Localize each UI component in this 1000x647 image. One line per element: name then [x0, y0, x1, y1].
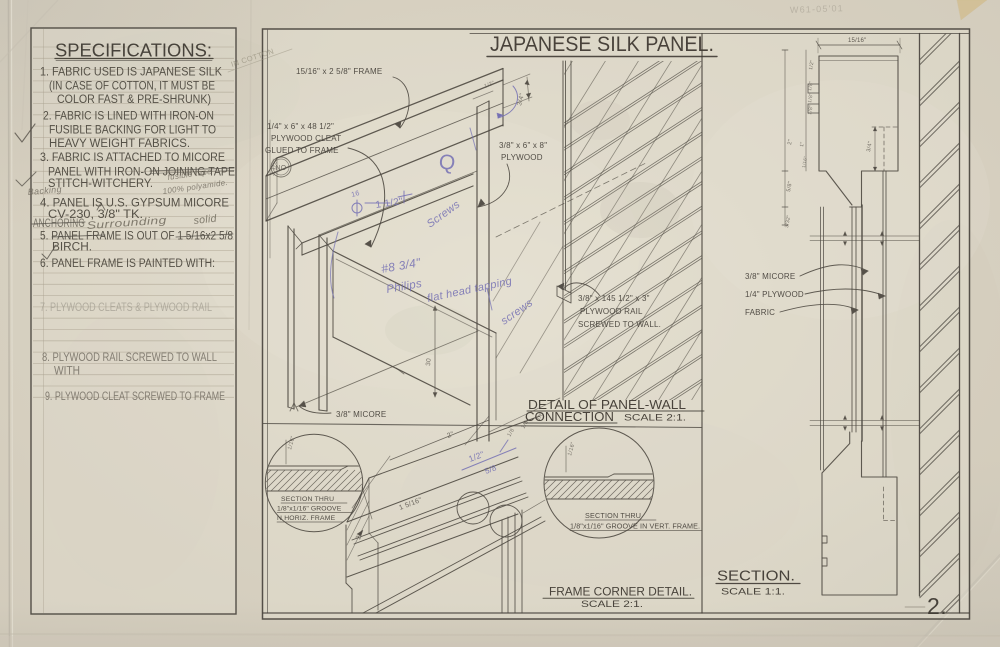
svg-text:2.: 2. [927, 593, 947, 619]
svg-text:PLYWOOD: PLYWOOD [501, 153, 543, 162]
svg-text:(IN CASE OF COTTON, IT MUST BE: (IN CASE OF COTTON, IT MUST BE [49, 79, 215, 93]
svg-text:Q: Q [437, 150, 457, 175]
svg-text:GLUED TO FRAME: GLUED TO FRAME [265, 146, 339, 155]
svg-text:SECTION.: SECTION. [717, 569, 795, 585]
svg-text:SCALE 2:1.: SCALE 2:1. [581, 599, 643, 609]
svg-text:PLYWOOD CLEAT: PLYWOOD CLEAT [271, 134, 341, 143]
svg-text:FABRIC: FABRIC [745, 308, 775, 317]
svg-text:FUSIBLE BACKING FOR LIGHT TO: FUSIBLE BACKING FOR LIGHT TO [49, 123, 216, 137]
svg-text:1/4" PLYWOOD: 1/4" PLYWOOD [745, 290, 804, 299]
svg-text:3/8" MICORE: 3/8" MICORE [745, 272, 795, 281]
svg-text:1. FABRIC USED IS JAPANESE SIL: 1. FABRIC USED IS JAPANESE SILK [40, 65, 223, 79]
svg-text:2": 2" [787, 139, 794, 146]
svg-text:HEAVY WEIGHT FABRICS.: HEAVY WEIGHT FABRICS. [49, 136, 190, 150]
svg-text:1": 1" [799, 141, 806, 147]
svg-text:3/8" x 145 1/2" x 3": 3/8" x 145 1/2" x 3" [578, 294, 650, 303]
svg-text:SCREWED TO WALL.: SCREWED TO WALL. [578, 320, 661, 329]
svg-text:WITH: WITH [54, 364, 80, 378]
svg-text:6. PANEL FRAME IS PAINTED WITH: 6. PANEL FRAME IS PAINTED WITH: [40, 256, 215, 270]
svg-text:15/16" x 2 5/8" FRAME: 15/16" x 2 5/8" FRAME [296, 67, 382, 76]
svg-text:SCALE 2:1.: SCALE 2:1. [624, 413, 686, 424]
svg-text:N HORIZ. FRAME: N HORIZ. FRAME [277, 515, 336, 522]
svg-text:3/8" x 6" x 8": 3/8" x 6" x 8" [499, 141, 547, 150]
svg-text:9. PLYWOOD CLEAT SCREWED TO FR: 9. PLYWOOD CLEAT SCREWED TO FRAME [45, 389, 225, 403]
svg-text:BIRCH.: BIRCH. [52, 240, 92, 254]
svg-text:SPECIFICATIONS:: SPECIFICATIONS: [55, 40, 212, 61]
svg-text:3/8" MICORE: 3/8" MICORE [336, 410, 386, 419]
svg-text:15/16": 15/16" [848, 38, 866, 44]
svg-text:STITCH-WITCHERY.: STITCH-WITCHERY. [48, 176, 153, 190]
svg-text:SECTION THRU: SECTION THRU [281, 496, 334, 503]
svg-text:JAPANESE SILK PANEL.: JAPANESE SILK PANEL. [490, 33, 714, 56]
svg-text:8. PLYWOOD RAIL SCREWED TO WAL: 8. PLYWOOD RAIL SCREWED TO WALL [42, 350, 217, 364]
svg-text:7. PLYWOOD CLEATS & PLYWOOD RA: 7. PLYWOOD CLEATS & PLYWOOD RAIL [40, 300, 212, 314]
svg-text:1/8"x1/16" GROOVE: 1/8"x1/16" GROOVE [277, 506, 342, 513]
svg-text:PLYWOOD RAIL: PLYWOOD RAIL [580, 307, 643, 316]
svg-text:COLOR FAST & PRE-SHRUNK): COLOR FAST & PRE-SHRUNK) [57, 92, 211, 106]
svg-text:3. FABRIC IS ATTACHED TO MICOR: 3. FABRIC IS ATTACHED TO MICORE [40, 150, 225, 164]
svg-text:SCALE 1:1.: SCALE 1:1. [721, 587, 785, 598]
svg-text:2. FABRIC IS LINED WITH IRON-O: 2. FABRIC IS LINED WITH IRON-ON [43, 109, 214, 123]
svg-text:NO: NO [275, 165, 286, 172]
svg-text:30: 30 [425, 358, 433, 366]
svg-text:1/4" x 6" x 48 1/2": 1/4" x 6" x 48 1/2" [267, 122, 334, 131]
svg-text:FRAME CORNER DETAIL.: FRAME CORNER DETAIL. [549, 585, 692, 599]
svg-text:SECTION THRU: SECTION THRU [585, 511, 641, 520]
svg-text:solid: solid [193, 213, 218, 227]
svg-text:1/8"x1/16" GROOVE IN VERT. FRA: 1/8"x1/16" GROOVE IN VERT. FRAME. [570, 522, 700, 531]
svg-text:W61-05'01: W61-05'01 [790, 3, 844, 15]
